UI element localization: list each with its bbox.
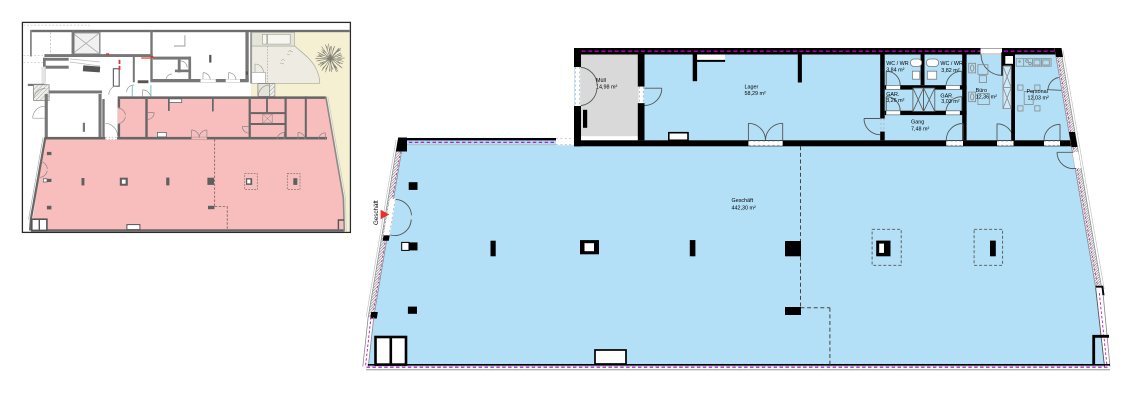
svg-text:442,30 m²: 442,30 m²	[732, 206, 756, 212]
svg-text:3,84 m²: 3,84 m²	[886, 68, 904, 74]
svg-text:GAR.: GAR.	[886, 92, 899, 98]
svg-text:Geschäft: Geschäft	[373, 200, 380, 225]
svg-text:14,98 m²: 14,98 m²	[596, 85, 617, 91]
svg-text:3,82 m²: 3,82 m²	[941, 68, 959, 74]
svg-text:12,03 m²: 12,03 m²	[1028, 96, 1049, 102]
svg-text:WC / WR: WC / WR	[940, 61, 963, 67]
svg-text:Müll: Müll	[596, 78, 606, 84]
svg-text:3,26 m²: 3,26 m²	[886, 98, 904, 104]
svg-text:Büro: Büro	[976, 88, 987, 94]
svg-text:58,29 m²: 58,29 m²	[745, 91, 766, 97]
svg-text:Personal: Personal	[1027, 89, 1048, 95]
svg-text:7,48 m²: 7,48 m²	[911, 127, 929, 133]
svg-text:Lager: Lager	[745, 85, 759, 91]
svg-text:3,03 m²: 3,03 m²	[941, 99, 959, 105]
svg-text:Gang: Gang	[911, 120, 924, 126]
svg-text:Geschäft: Geschäft	[732, 198, 754, 204]
svg-text:WC / WR: WC / WR	[886, 61, 909, 67]
svg-text:12,36 m²: 12,36 m²	[976, 94, 997, 100]
